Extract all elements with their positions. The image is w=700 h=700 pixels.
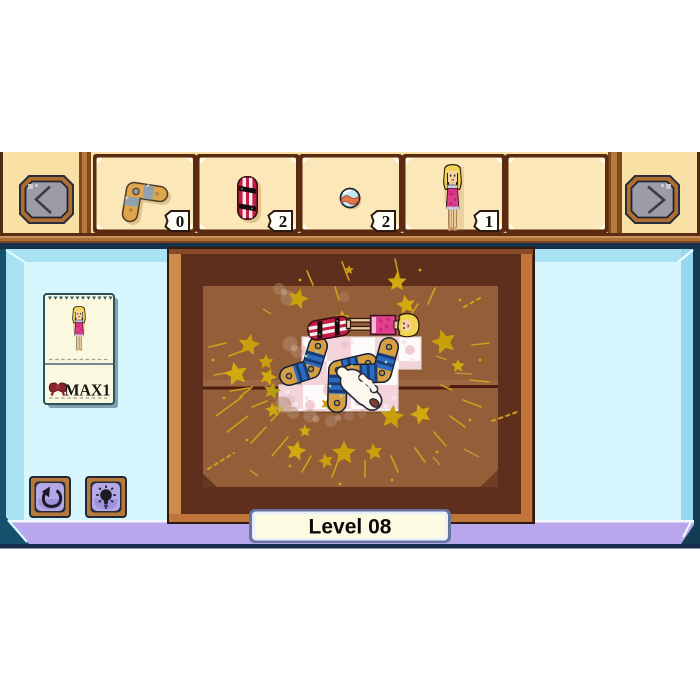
svg-text:Level 08: Level 08 bbox=[309, 516, 392, 539]
svg-text:0: 0 bbox=[176, 212, 185, 231]
svg-text:2: 2 bbox=[279, 212, 288, 231]
svg-text:2: 2 bbox=[382, 212, 391, 231]
svg-text:1: 1 bbox=[485, 212, 494, 231]
svg-text:MAX1: MAX1 bbox=[65, 381, 111, 400]
